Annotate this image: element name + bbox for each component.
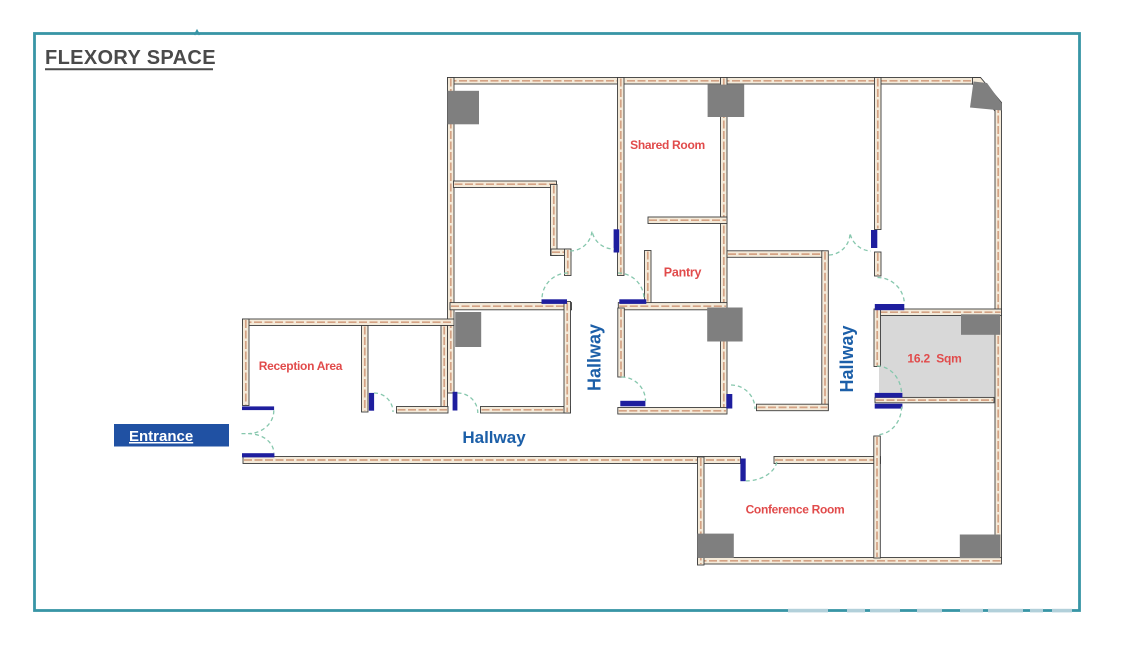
- svg-text:16.2 Sqm: 16.2 Sqm: [907, 352, 961, 366]
- svg-text:Pantry: Pantry: [664, 266, 702, 280]
- svg-text:FLEXORY SPACE: FLEXORY SPACE: [45, 47, 216, 69]
- svg-text:Shared Room: Shared Room: [630, 138, 705, 152]
- svg-text:Hallway: Hallway: [585, 324, 605, 391]
- svg-text:Hallway: Hallway: [462, 428, 526, 447]
- svg-text:Conference Room: Conference Room: [746, 502, 845, 516]
- svg-text:Hallway: Hallway: [837, 325, 857, 392]
- svg-text:Entrance: Entrance: [129, 428, 193, 445]
- svg-text:Reception Area: Reception Area: [259, 359, 343, 373]
